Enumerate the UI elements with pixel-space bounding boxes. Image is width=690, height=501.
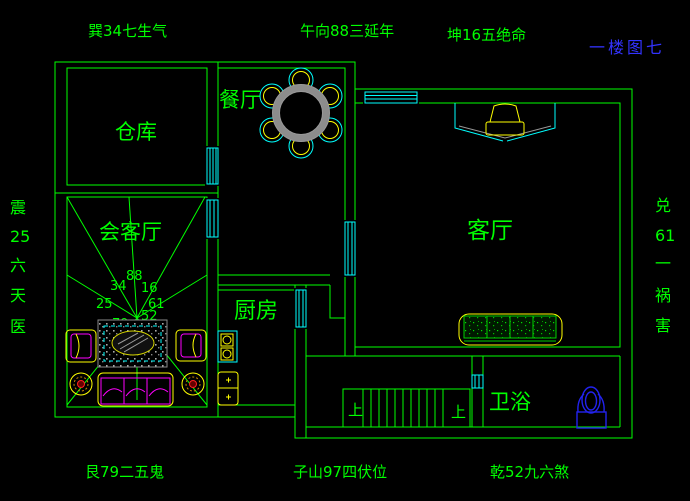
- stairs-up-label-right: 上: [451, 403, 466, 421]
- svg-text:六: 六: [10, 256, 26, 275]
- label-reception: 会客厅: [99, 220, 162, 244]
- svg-text:天: 天: [10, 286, 26, 305]
- compass-bottom-right: 乾52九六煞: [490, 463, 569, 481]
- label-bath: 卫浴: [489, 390, 531, 414]
- svg-text:震: 震: [10, 198, 26, 217]
- reception-window: [205, 198, 219, 239]
- stairs-up-label-left: 上: [348, 401, 363, 419]
- label-kitchen: 厨房: [234, 299, 278, 324]
- kitchen-window: [294, 288, 307, 329]
- compass-bottom-left: 艮79二五鬼: [85, 463, 164, 481]
- svg-text:兑: 兑: [655, 196, 671, 215]
- svg-text:一: 一: [655, 254, 671, 273]
- living-top-window: [363, 90, 419, 105]
- sheet-title: 一楼图七: [589, 38, 665, 57]
- dining-table: [276, 88, 326, 138]
- rug: [98, 320, 167, 367]
- fengshui-number-w: 25: [96, 297, 113, 312]
- compass-top-center: 午向88三延年: [300, 22, 394, 40]
- svg-text:医: 医: [10, 317, 26, 336]
- bath-window: [472, 375, 483, 388]
- svg-text:害: 害: [655, 316, 671, 335]
- fengshui-number-nw: 34: [110, 279, 127, 294]
- svg-text:祸: 祸: [655, 286, 671, 305]
- label-warehouse: 仓库: [115, 120, 157, 144]
- svg-text:61: 61: [655, 226, 675, 245]
- label-living: 客厅: [467, 218, 513, 244]
- living-left-window: [343, 220, 357, 277]
- label-dining: 餐厅: [219, 88, 261, 112]
- compass-bottom-center: 子山97四伏位: [293, 463, 387, 481]
- svg-text:25: 25: [10, 227, 30, 246]
- compass-top-left: 巽34七生气: [88, 22, 167, 40]
- fengshui-number-ne: 16: [141, 281, 158, 296]
- warehouse-window: [205, 146, 219, 186]
- compass-top-right: 坤16五绝命: [447, 26, 526, 44]
- floor-plan-canvas: 34 88 16 25 61 79 52: [0, 0, 690, 501]
